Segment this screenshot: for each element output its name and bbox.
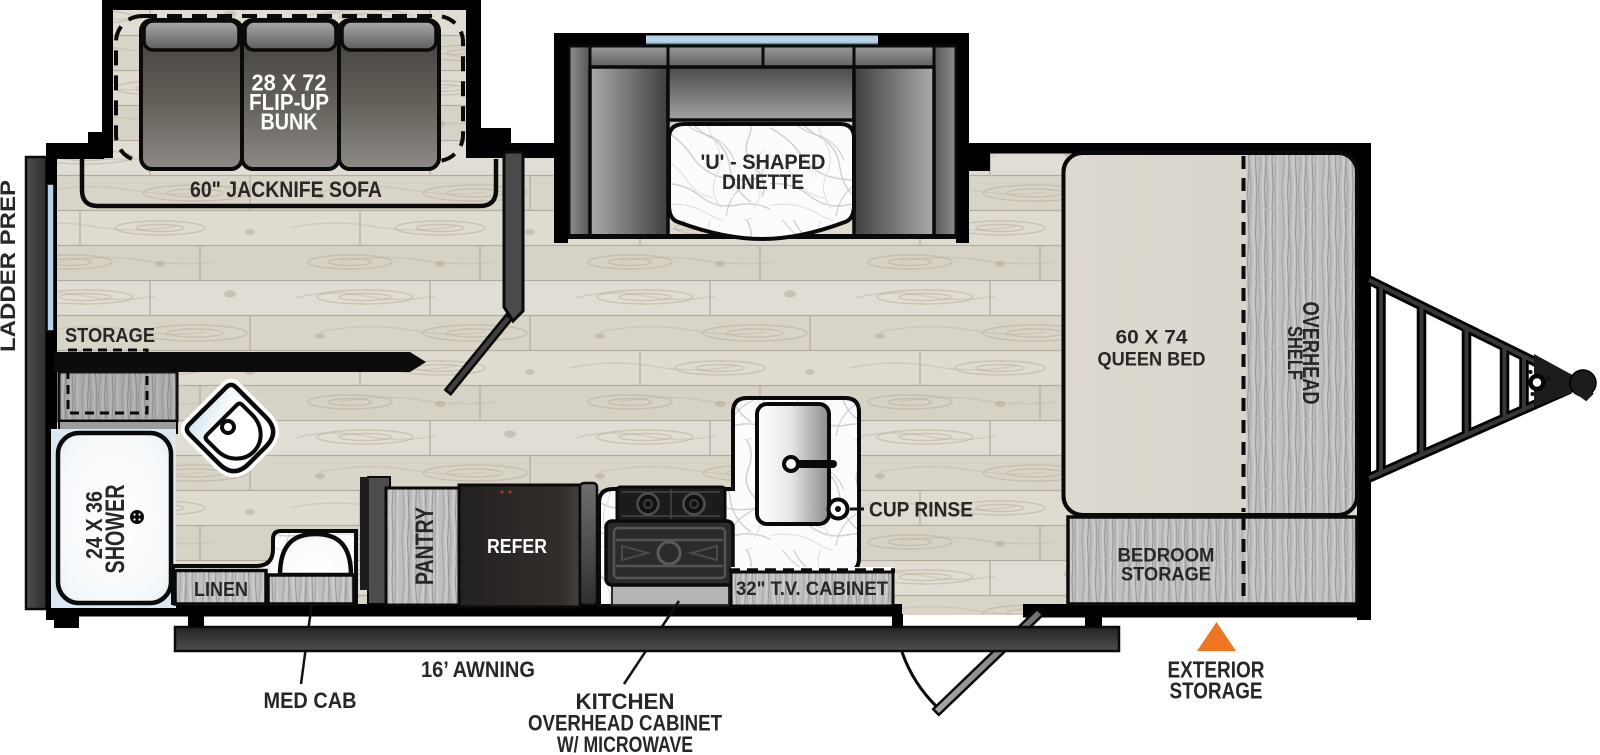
svg-text:CUP RINSE: CUP RINSE — [869, 498, 973, 522]
svg-text:STORAGE: STORAGE — [65, 324, 155, 347]
svg-text:BUNK: BUNK — [261, 109, 318, 135]
svg-text:MED CAB: MED CAB — [264, 688, 357, 713]
svg-text:LINEN: LINEN — [194, 579, 248, 601]
svg-text:LADDER PREP: LADDER PREP — [0, 180, 20, 352]
svg-text:PANTRY: PANTRY — [411, 507, 439, 585]
svg-text:STORAGE: STORAGE — [1170, 678, 1263, 704]
svg-text:32" T.V. CABINET: 32" T.V. CABINET — [736, 578, 888, 600]
svg-text:16’ AWNING: 16’ AWNING — [421, 657, 535, 682]
svg-text:QUEEN BED: QUEEN BED — [1098, 349, 1206, 371]
svg-text:60 X 74: 60 X 74 — [1116, 327, 1188, 349]
svg-text:DINETTE: DINETTE — [722, 170, 804, 194]
svg-text:STORAGE: STORAGE — [1121, 564, 1211, 586]
svg-text:SHOWER: SHOWER — [100, 485, 130, 574]
svg-text:SHELF: SHELF — [1283, 326, 1306, 380]
svg-text:60" JACKNIFE SOFA: 60" JACKNIFE SOFA — [190, 177, 382, 202]
svg-text:W/ MICROWAVE: W/ MICROWAVE — [557, 732, 693, 755]
svg-text:REFER: REFER — [487, 535, 547, 558]
